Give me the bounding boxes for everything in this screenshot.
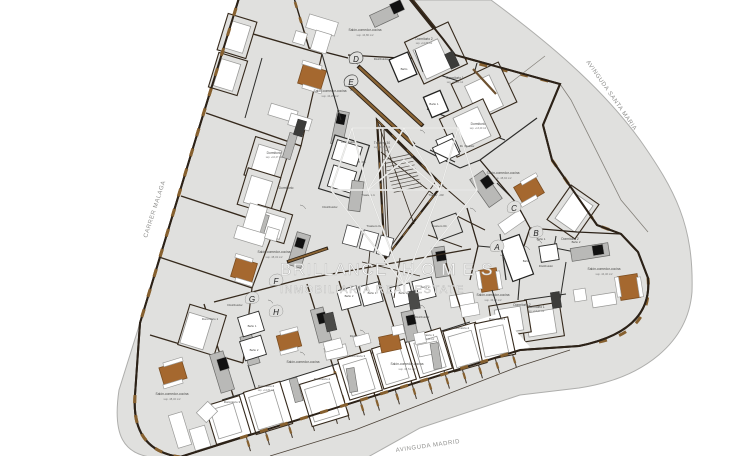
svg-text:E: E — [348, 78, 354, 87]
svg-text:Trastero 1: Trastero 1 — [361, 193, 375, 197]
svg-text:Salón-comedor-cocina: Salón-comedor-cocina — [588, 267, 621, 271]
svg-text:Baño 1: Baño 1 — [248, 324, 257, 328]
svg-text:BRILLANCE: BRILLANCE — [280, 260, 388, 279]
svg-text:Baño: Baño — [401, 67, 408, 71]
svg-text:D: D — [353, 55, 359, 64]
svg-text:Dormitorio 3: Dormitorio 3 — [489, 317, 506, 321]
svg-text:INMOBILIARIA REAL ESTATE: INMOBILIARIA REAL ESTATE — [280, 284, 465, 296]
svg-text:sup. 43,20 m2: sup. 43,20 m2 — [484, 298, 502, 302]
svg-text:Distribuidor: Distribuidor — [322, 205, 337, 209]
svg-text:Baño: Baño — [523, 259, 530, 263]
svg-text:Distribuidor: Distribuidor — [227, 303, 242, 307]
svg-text:sup. 44,46 m2: sup. 44,46 m2 — [595, 272, 613, 276]
svg-text:sup. 48,32 m2: sup. 48,32 m2 — [163, 397, 181, 401]
svg-text:Trastero 30: Trastero 30 — [374, 141, 390, 145]
svg-text:B: B — [533, 229, 539, 238]
svg-text:Distribuidor: Distribuidor — [539, 264, 553, 268]
svg-text:Dormitorio 2: Dormitorio 2 — [415, 37, 433, 41]
svg-text:sup. +13,49 m2: sup. +13,49 m2 — [470, 127, 487, 130]
svg-text:sup. 44,26 m2: sup. 44,26 m2 — [321, 94, 339, 98]
svg-text:sup. +10,47 m2: sup. +10,47 m2 — [266, 156, 283, 159]
svg-text:Distribuidor: Distribuidor — [415, 315, 430, 319]
svg-text:Dormitorio 2: Dormitorio 2 — [258, 384, 275, 388]
svg-text:Dormitorio 2: Dormitorio 2 — [453, 326, 470, 330]
svg-text:sup. 48,43 m2: sup. 48,43 m2 — [265, 255, 283, 259]
svg-text:Distribuidor: Distribuidor — [460, 144, 475, 148]
svg-text:Salón-comedor-cocina: Salón-comedor-cocina — [314, 89, 347, 93]
svg-text:Salón-comedor-cocina: Salón-comedor-cocina — [156, 392, 189, 396]
svg-text:A: A — [493, 243, 499, 252]
svg-text:Trastero 02: Trastero 02 — [366, 224, 382, 228]
svg-text:Baño 2: Baño 2 — [250, 348, 259, 352]
svg-text:Dormitorio 1: Dormitorio 1 — [202, 317, 219, 321]
svg-text:Distribuidor: Distribuidor — [341, 140, 356, 144]
svg-text:G: G — [249, 295, 255, 304]
svg-text:Salón-comedor-cocina: Salón-comedor-cocina — [287, 360, 320, 364]
svg-text:Dormitorio 2: Dormitorio 2 — [314, 377, 331, 381]
svg-text:Salón-comedor-cocina: Salón-comedor-cocina — [258, 250, 291, 254]
svg-text:sup. 44,80 m2: sup. 44,80 m2 — [356, 33, 374, 37]
svg-text:HOMES: HOMES — [402, 260, 499, 279]
svg-text:Salón-comedor-cocina: Salón-comedor-cocina — [391, 362, 424, 366]
svg-text:C: C — [511, 204, 517, 213]
svg-text:sup. 45,51 m2: sup. 45,51 m2 — [398, 367, 416, 371]
svg-text:Dormitorio: Dormitorio — [267, 151, 282, 155]
svg-text:Trastero 03: Trastero 03 — [428, 193, 444, 197]
svg-text:Distribuidor: Distribuidor — [374, 57, 389, 61]
svg-text:Salón-comedor-cocina: Salón-comedor-cocina — [487, 171, 520, 175]
svg-text:sup. +14,06 m2: sup. +14,06 m2 — [447, 81, 464, 84]
svg-text:Dormitorio 2: Dormitorio 2 — [513, 303, 531, 307]
svg-text:sup. 44,77 m2: sup. 44,77 m2 — [374, 145, 391, 149]
svg-text:Dormitorio 3: Dormitorio 3 — [349, 354, 366, 358]
svg-text:Dormitorio: Dormitorio — [471, 122, 486, 126]
svg-text:Baño 1: Baño 1 — [429, 102, 439, 106]
svg-text:Baño 2: Baño 2 — [572, 240, 581, 244]
svg-text:sup. +12,85 m2: sup. +12,85 m2 — [416, 42, 433, 45]
svg-text:Dormitorio 3: Dormitorio 3 — [224, 400, 241, 404]
svg-text:Dormitorio 1: Dormitorio 1 — [446, 76, 464, 80]
svg-text:Salón-comedor-cocina: Salón-comedor-cocina — [349, 28, 382, 32]
svg-text:Dormitorio: Dormitorio — [279, 186, 294, 190]
svg-text:sup. +12,84 m2: sup. +12,84 m2 — [258, 389, 275, 392]
svg-text:sup. 48,94 m2: sup. 48,94 m2 — [494, 176, 512, 180]
svg-text:Trastero 04: Trastero 04 — [431, 224, 447, 228]
svg-text:H: H — [273, 308, 279, 317]
svg-text:sup. +13,24 m2: sup. +13,24 m2 — [528, 310, 545, 313]
